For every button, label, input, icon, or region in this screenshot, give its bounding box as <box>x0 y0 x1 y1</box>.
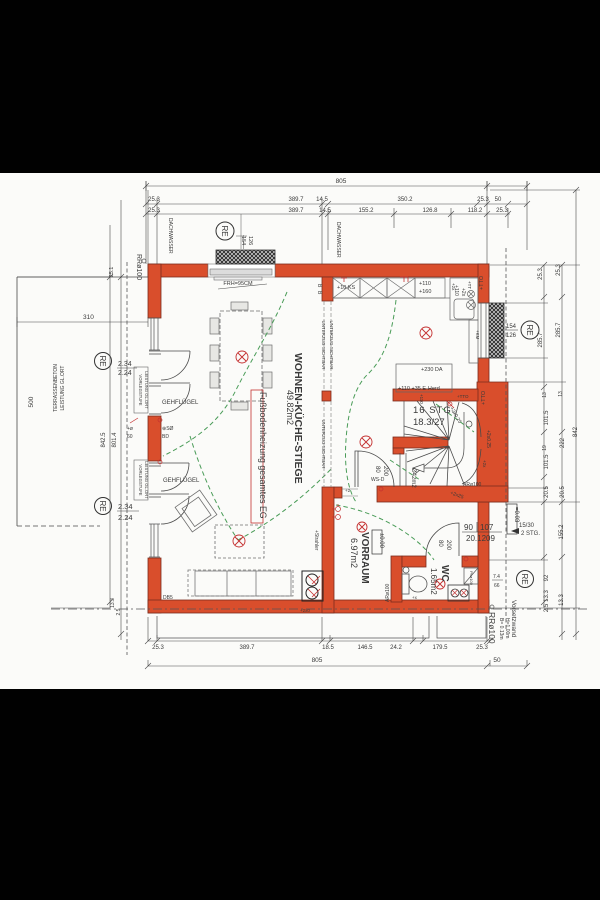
svg-text:GEHFLÜGEL: GEHFLÜGEL <box>162 399 199 406</box>
svg-text:25.3: 25.3 <box>148 208 160 214</box>
svg-text:VORLEGSTUFE: VORLEGSTUFE <box>138 374 143 405</box>
svg-text:UNTERZUG SICHTBAR: UNTERZUG SICHTBAR <box>321 320 326 370</box>
svg-text:101.5: 101.5 <box>544 454 550 470</box>
svg-text:+x: +x <box>412 595 418 600</box>
svg-text:500: 500 <box>28 396 35 407</box>
svg-text:+TTO: +TTO <box>481 390 487 405</box>
svg-text:801.4: 801.4 <box>112 432 118 448</box>
svg-text:200: 200 <box>382 466 388 477</box>
svg-text:60: 60 <box>127 434 133 440</box>
svg-text:92: 92 <box>544 574 550 581</box>
svg-text:+2x0: +2x0 <box>300 608 310 613</box>
svg-text:+2x: +2x <box>460 288 466 297</box>
svg-text:66: 66 <box>494 583 500 589</box>
svg-text:+TT: +TT <box>467 281 472 289</box>
svg-text:14.5: 14.5 <box>316 197 328 203</box>
svg-text:VORLEGSTUFE: VORLEGSTUFE <box>138 464 143 495</box>
svg-text:DACHWASSER: DACHWASSER <box>167 218 173 254</box>
svg-text:RRø100: RRø100 <box>135 254 142 280</box>
svg-text:24.2: 24.2 <box>390 645 402 651</box>
svg-text:19: 19 <box>542 445 548 451</box>
svg-text:Fußbodenheizung gesamtes EG: Fußbodenheizung gesamtes EG <box>258 392 268 519</box>
svg-text:25.1: 25.1 <box>109 267 115 278</box>
svg-text:RE: RE <box>220 225 229 236</box>
svg-text:⊕SØ: ⊕SØ <box>162 426 174 432</box>
svg-text:126: 126 <box>506 333 517 339</box>
svg-text:107: 107 <box>480 523 494 532</box>
svg-text:25.3: 25.3 <box>148 197 160 203</box>
svg-text:H=1.00m: H=1.00m <box>504 618 510 638</box>
svg-text:389.7: 389.7 <box>288 197 304 203</box>
svg-text:179.5: 179.5 <box>432 645 448 651</box>
svg-text:13.3: 13.3 <box>544 590 550 602</box>
svg-text:7.4: 7.4 <box>493 574 500 580</box>
svg-text:389.7: 389.7 <box>239 645 255 651</box>
svg-text:+160: +160 <box>419 289 431 295</box>
svg-text:6.97m2: 6.97m2 <box>349 538 359 568</box>
svg-text:350.2: 350.2 <box>397 197 413 203</box>
svg-text:25.3: 25.3 <box>538 268 544 280</box>
svg-text:TERRASSENBETON: TERRASSENBETON <box>53 364 59 412</box>
svg-text:VORRAUM: VORRAUM <box>359 532 370 584</box>
svg-text:RE: RE <box>98 355 107 366</box>
svg-text:UNTERZUG SICHTBAR: UNTERZUG SICHTBAR <box>329 320 334 370</box>
svg-text:101.5: 101.5 <box>544 410 550 426</box>
svg-text:2.5: 2.5 <box>544 603 550 612</box>
svg-text:2.5: 2.5 <box>116 608 122 615</box>
svg-text:+ø: +ø <box>127 426 133 432</box>
svg-text:+TTO: +TTO <box>457 394 469 399</box>
svg-text:25.3: 25.3 <box>556 264 562 276</box>
svg-text:13.3: 13.3 <box>110 598 116 608</box>
svg-text:2.34: 2.34 <box>118 502 133 511</box>
svg-text:+TTO: +TTO <box>479 275 485 290</box>
svg-text:18.5: 18.5 <box>322 645 334 651</box>
svg-text:118.2: 118.2 <box>468 208 483 214</box>
svg-text:ARø100: ARø100 <box>385 583 391 602</box>
svg-text:LEISTUNG GL.ORT: LEISTUNG GL.ORT <box>144 371 149 409</box>
svg-text:+2x: +2x <box>482 460 487 468</box>
svg-text:GEHFLÜGEL: GEHFLÜGEL <box>163 477 200 484</box>
svg-text:25.3: 25.3 <box>152 645 164 651</box>
svg-text:13.3: 13.3 <box>559 594 565 606</box>
svg-text:805: 805 <box>312 657 323 664</box>
svg-text:+KM: +KM <box>475 330 480 340</box>
svg-text:Vorsetzwand: Vorsetzwand <box>510 600 517 638</box>
svg-text:14.5: 14.5 <box>319 208 331 214</box>
svg-text:WS-D: WS-D <box>371 477 385 483</box>
svg-text:16 STG.: 16 STG. <box>413 405 455 416</box>
svg-text:1.65m2: 1.65m2 <box>429 568 438 595</box>
svg-text:DACHWASSER: DACHWASSER <box>335 222 341 258</box>
svg-text:146.5: 146.5 <box>357 645 373 651</box>
svg-text:80: 80 <box>437 540 443 547</box>
svg-text:ARø100: ARø100 <box>463 482 482 488</box>
svg-text:805: 805 <box>336 178 347 185</box>
svg-text:20.5: 20.5 <box>544 486 550 498</box>
svg-text:RE: RE <box>98 500 107 511</box>
svg-text:2 STG.: 2 STG. <box>521 531 540 537</box>
svg-text:±0.00: ±0.00 <box>378 533 384 549</box>
svg-text:50: 50 <box>493 657 501 664</box>
svg-text:+10 KS: +10 KS <box>337 285 356 291</box>
svg-text:+2x: +2x <box>451 283 456 291</box>
svg-text:154: 154 <box>506 324 517 330</box>
svg-text:Phø100: Phø100 <box>469 571 474 586</box>
svg-text:80: 80 <box>374 466 380 473</box>
svg-text:25.3: 25.3 <box>477 197 489 203</box>
svg-text:15/30: 15/30 <box>519 523 535 529</box>
svg-text:+2: +2 <box>345 488 351 493</box>
svg-text:842.5: 842.5 <box>101 432 107 448</box>
svg-text:UNTERZUG SICHTBAR: UNTERZUG SICHTBAR <box>321 419 326 469</box>
svg-text:222: 222 <box>560 437 566 448</box>
svg-text:126: 126 <box>247 236 253 245</box>
svg-text:18.3/27: 18.3/27 <box>413 417 445 428</box>
svg-text:2.24: 2.24 <box>118 370 132 377</box>
svg-text:25.3: 25.3 <box>496 208 508 214</box>
svg-text:90: 90 <box>464 523 473 532</box>
svg-text:BD: BD <box>162 434 169 440</box>
svg-text:155.2: 155.2 <box>559 524 565 540</box>
svg-text:842: 842 <box>573 426 579 437</box>
svg-text:155.2: 155.2 <box>358 208 374 214</box>
svg-text:25.3: 25.3 <box>476 645 488 651</box>
svg-text:310: 310 <box>83 314 94 321</box>
svg-text:RE: RE <box>520 573 529 584</box>
svg-text:200: 200 <box>445 540 451 551</box>
svg-text:20.1209: 20.1209 <box>466 534 495 543</box>
svg-text:LEISTUNG GL.ORT: LEISTUNG GL.ORT <box>144 461 149 499</box>
svg-text:LEISTUNG GL.ORT: LEISTUNG GL.ORT <box>60 366 66 411</box>
svg-text:RE: RE <box>525 324 534 335</box>
svg-text:+110: +110 <box>419 394 424 404</box>
svg-text:+2x0.25: +2x0.25 <box>485 430 491 448</box>
svg-text:2.34: 2.34 <box>118 361 132 368</box>
svg-text:50: 50 <box>495 197 502 203</box>
svg-text:B= 0.13m: B= 0.13m <box>498 618 504 640</box>
svg-text:DB5: DB5 <box>163 595 173 601</box>
svg-text:+Strahler: +Strahler <box>313 530 319 551</box>
svg-text:20.5: 20.5 <box>560 486 566 498</box>
svg-text:Ø42m2: Ø42m2 <box>410 468 416 488</box>
svg-text:+110: +110 <box>419 281 431 287</box>
svg-text:+230 DA: +230 DA <box>421 367 443 373</box>
svg-text:13: 13 <box>542 392 548 398</box>
svg-text:WC: WC <box>439 565 450 582</box>
svg-text:13: 13 <box>558 391 564 397</box>
svg-text:126.8: 126.8 <box>422 208 438 214</box>
svg-text:285.7: 285.7 <box>556 322 562 338</box>
svg-text:389.7: 389.7 <box>288 208 304 214</box>
svg-text:285.7: 285.7 <box>538 332 544 348</box>
svg-text:49.82m2: 49.82m2 <box>285 390 295 425</box>
svg-text:=0.03: =0.03 <box>513 507 519 523</box>
svg-text:+110 +35 E-Herd: +110 +35 E-Herd <box>398 386 440 392</box>
svg-text:2.24: 2.24 <box>118 513 133 522</box>
